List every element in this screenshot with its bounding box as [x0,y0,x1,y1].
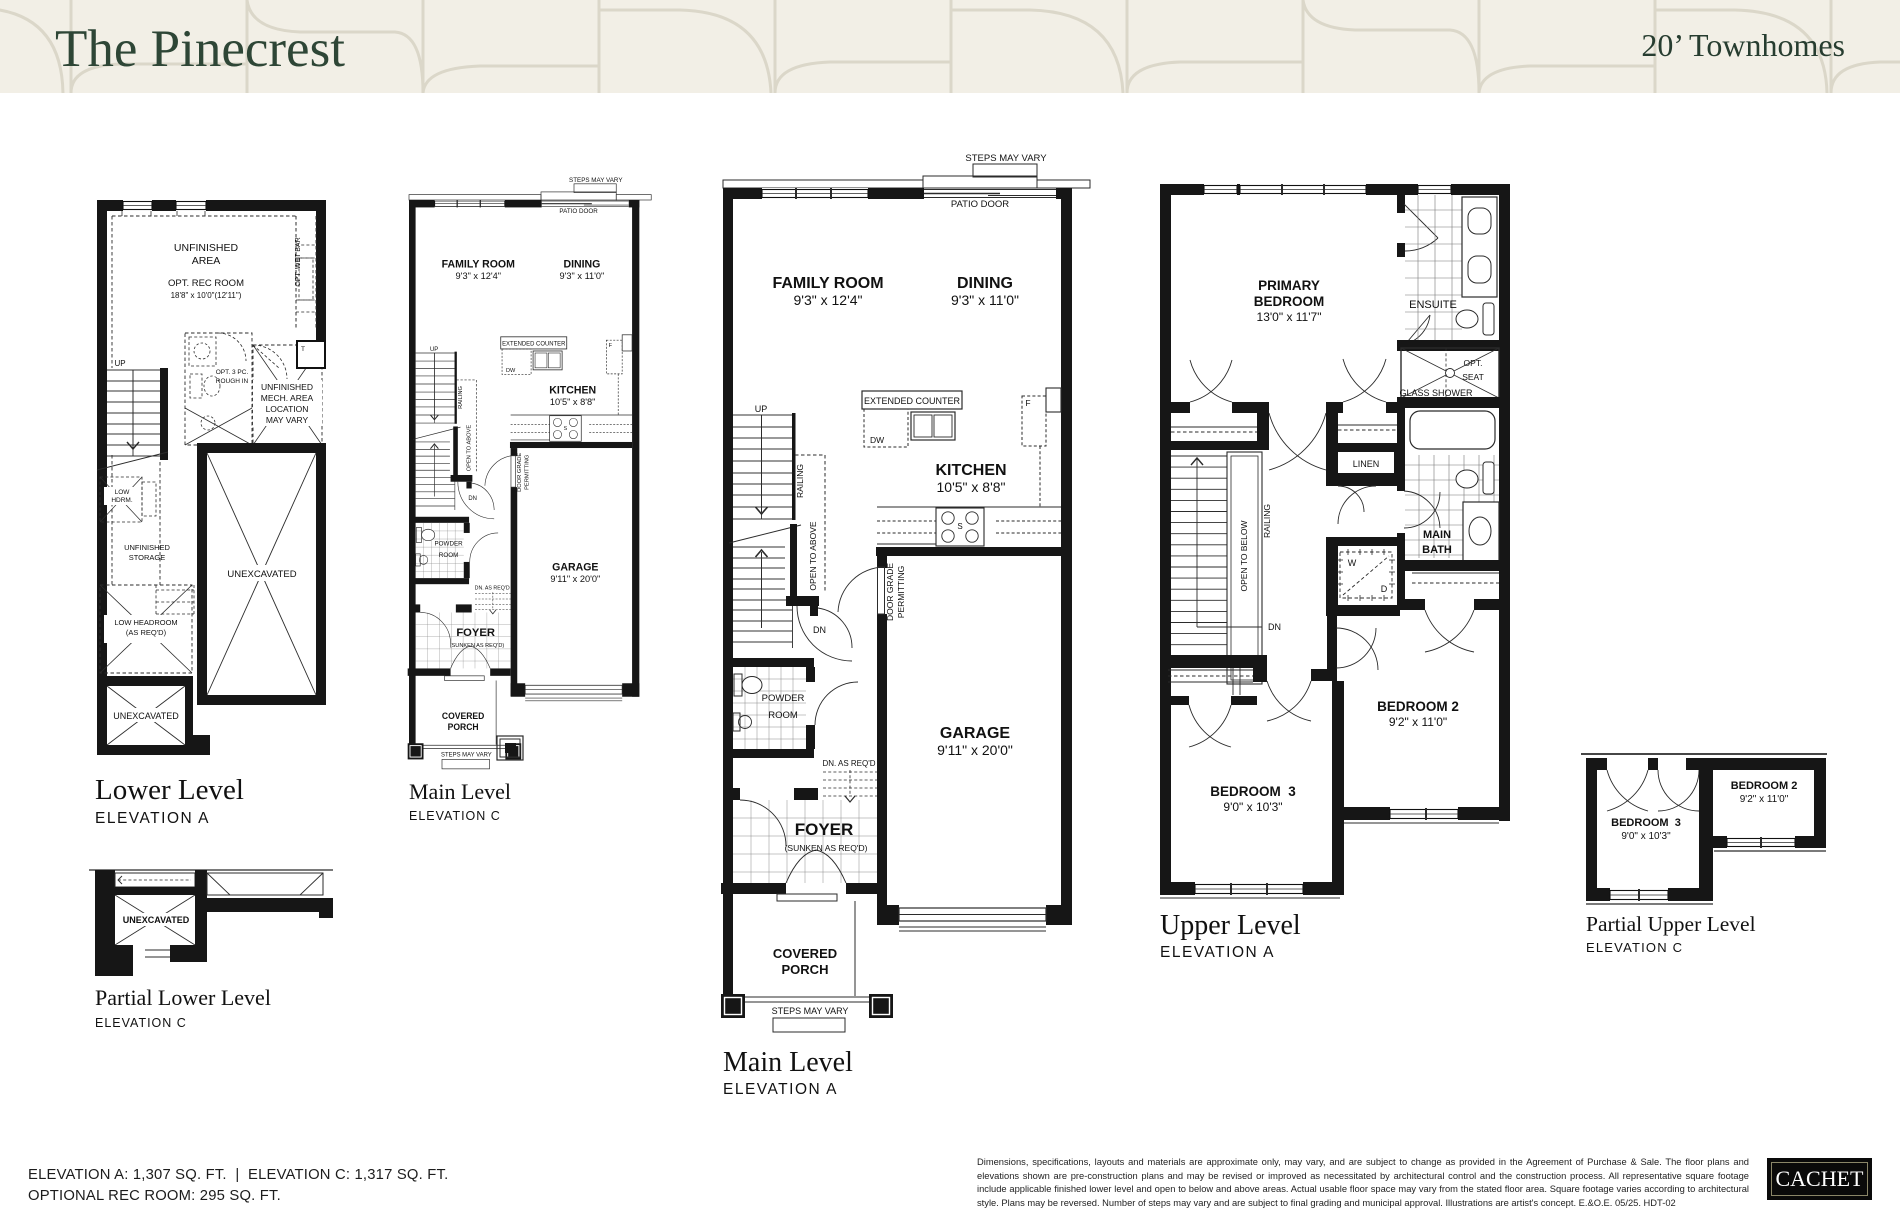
svg-text:Partial Lower Level: Partial Lower Level [95,985,271,1010]
svg-text:DN. AS REQ'D: DN. AS REQ'D [822,759,875,768]
svg-text:LOCATION: LOCATION [266,404,309,414]
svg-text:9'11" x 20'0": 9'11" x 20'0" [937,742,1013,758]
svg-text:EXTENDED COUNTER: EXTENDED COUNTER [864,396,961,406]
svg-text:SEAT: SEAT [1462,372,1484,382]
svg-text:OPT. 3 PC.: OPT. 3 PC. [216,369,249,376]
svg-text:9'3" x 11'0": 9'3" x 11'0" [951,292,1019,308]
svg-text:AREA: AREA [192,255,221,267]
svg-text:OPEN TO BELOW: OPEN TO BELOW [1239,520,1249,591]
svg-text:RAILING: RAILING [1262,504,1272,538]
svg-text:UNFINISHED: UNFINISHED [261,382,313,392]
svg-text:BEDROOM 3: BEDROOM 3 [1611,817,1681,829]
svg-text:HDRM.: HDRM. [111,497,132,504]
svg-text:(SUNKEN AS REQ'D): (SUNKEN AS REQ'D) [785,843,868,853]
svg-text:ELEVATION A: ELEVATION A [1160,944,1275,961]
svg-text:ENSUITE: ENSUITE [1409,299,1457,311]
svg-text:UP: UP [114,359,125,368]
svg-text:COVERED: COVERED [773,946,837,961]
svg-text:10'5" x 8'8": 10'5" x 8'8" [937,479,1006,495]
svg-text:PERMITTING: PERMITTING [896,566,906,618]
svg-text:FAMILY ROOM: FAMILY ROOM [772,275,883,292]
svg-text:FOYER: FOYER [795,820,854,839]
svg-text:STORAGE: STORAGE [129,553,166,562]
svg-text:Lower Level: Lower Level [95,774,244,806]
svg-text:BEDROOM 2: BEDROOM 2 [1377,699,1459,714]
svg-text:LINEN: LINEN [1353,459,1380,469]
svg-text:ELEVATION C: ELEVATION C [95,1016,187,1030]
svg-text:GARAGE: GARAGE [940,725,1011,742]
svg-text:BEDROOM 2: BEDROOM 2 [1731,780,1798,792]
svg-text:Main Level: Main Level [723,1047,853,1078]
svg-text:DN: DN [1268,622,1281,632]
svg-text:ELEVATION A: ELEVATION A [723,1081,838,1098]
svg-text:UNEXCAVATED: UNEXCAVATED [113,711,179,721]
svg-text:9'0" x 10'3": 9'0" x 10'3" [1223,800,1282,814]
svg-text:D: D [1381,584,1388,594]
svg-text:9'0" x 10'3": 9'0" x 10'3" [1621,831,1671,842]
svg-text:S: S [957,522,962,531]
svg-text:GLASS SHOWER: GLASS SHOWER [1399,388,1473,398]
svg-text:UP: UP [755,404,768,414]
svg-text:Main Level: Main Level [409,779,511,804]
svg-text:Partial Upper Level: Partial Upper Level [1586,912,1756,936]
svg-text:POWDER: POWDER [762,693,805,704]
svg-text:18'8" x 10'0"(12'11"): 18'8" x 10'0"(12'11") [171,291,242,300]
svg-text:MECH. AREA: MECH. AREA [261,393,314,403]
svg-text:UNEXCAVATED: UNEXCAVATED [123,915,190,925]
svg-text:OPT. REC ROOM: OPT. REC ROOM [168,278,244,289]
svg-text:DW: DW [870,435,884,445]
svg-text:STEPS MAY VARY: STEPS MAY VARY [772,1006,849,1016]
svg-text:KITCHEN: KITCHEN [935,462,1006,479]
svg-text:ELEVATION A: ELEVATION A [95,810,210,827]
svg-text:Upper Level: Upper Level [1160,910,1301,941]
svg-text:LOW HEADROOM: LOW HEADROOM [114,618,177,627]
svg-text:T: T [301,346,305,353]
svg-text:OPT. WET BAR: OPT. WET BAR [295,237,302,286]
svg-text:9'2" x 11'0": 9'2" x 11'0" [1389,715,1447,729]
svg-text:W: W [1348,558,1357,568]
svg-text:UNFINISHED: UNFINISHED [174,242,239,254]
svg-text:MAIN: MAIN [1423,529,1451,541]
svg-text:DOOR GRADE: DOOR GRADE [885,563,895,621]
svg-text:PATIO DOOR: PATIO DOOR [951,199,1009,210]
svg-text:ELEVATION C: ELEVATION C [409,809,501,823]
svg-text:13'0" x 11'7": 13'0" x 11'7" [1257,310,1322,324]
svg-text:BATH: BATH [1422,544,1452,556]
svg-text:ROOM: ROOM [768,710,798,721]
svg-text:ELEVATION C: ELEVATION C [1586,940,1683,955]
svg-text:BEDROOM: BEDROOM [1254,294,1325,309]
svg-text:OPEN TO ABOVE: OPEN TO ABOVE [808,521,818,590]
svg-text:PORCH: PORCH [782,962,829,977]
svg-text:UNFINISHED: UNFINISHED [124,543,170,552]
svg-text:UNEXCAVATED: UNEXCAVATED [227,569,296,580]
svg-text:F: F [1025,398,1030,408]
svg-text:PRIMARY: PRIMARY [1258,278,1320,293]
svg-text:BEDROOM 3: BEDROOM 3 [1210,784,1296,799]
svg-text:MAY VARY: MAY VARY [266,415,309,425]
svg-text:LOW: LOW [115,489,131,496]
svg-text:RAILING: RAILING [795,464,805,498]
svg-text:STEPS MAY VARY: STEPS MAY VARY [965,153,1047,164]
svg-text:9'3" x 12'4": 9'3" x 12'4" [794,292,863,308]
svg-text:(AS REQ'D): (AS REQ'D) [126,628,167,637]
svg-text:DN: DN [813,625,826,635]
svg-text:9'2" x 11'0": 9'2" x 11'0" [1740,794,1789,805]
svg-text:OPT.: OPT. [1464,358,1483,368]
svg-text:DINING: DINING [957,275,1013,292]
svg-text:ROUGH IN: ROUGH IN [216,378,249,385]
